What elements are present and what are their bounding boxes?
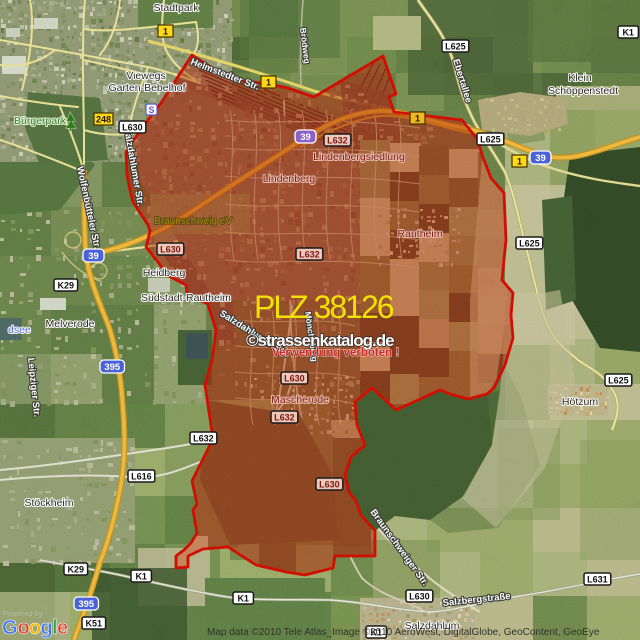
svg-text:Lindenberg: Lindenberg <box>263 173 316 185</box>
svg-text:Braunschweig eV: Braunschweig eV <box>154 216 232 227</box>
svg-text:o: o <box>18 617 30 639</box>
svg-text:1: 1 <box>266 78 271 88</box>
svg-text:395: 395 <box>78 599 95 610</box>
svg-text:Garten-Bebelhof: Garten-Bebelhof <box>108 82 185 94</box>
svg-text:Heidberg: Heidberg <box>143 267 186 279</box>
svg-text:K1: K1 <box>135 572 147 582</box>
svg-text:Map data ©2010 Tele Atlas_Imag: Map data ©2010 Tele Atlas_Image ©2010 Ae… <box>207 627 600 638</box>
svg-text:L630: L630 <box>319 480 340 490</box>
svg-text:Rautheim: Rautheim <box>398 228 443 240</box>
svg-text:1: 1 <box>415 114 420 124</box>
svg-text:L632: L632 <box>327 136 348 146</box>
svg-text:G: G <box>2 617 18 639</box>
svg-text:Bürgerpark: Bürgerpark <box>14 115 67 127</box>
svg-text:K29: K29 <box>68 565 85 575</box>
svg-text:395: 395 <box>104 362 121 373</box>
svg-text:Schöppenstedt: Schöppenstedt <box>548 85 618 97</box>
svg-text:L625: L625 <box>480 135 501 145</box>
svg-text:K29: K29 <box>58 281 75 291</box>
svg-text:e: e <box>57 617 68 639</box>
svg-text:Südstadt-Rautheim: Südstadt-Rautheim <box>141 292 231 304</box>
svg-text:L630: L630 <box>122 123 143 133</box>
svg-text:L632: L632 <box>299 250 320 260</box>
svg-text:L625: L625 <box>608 376 629 386</box>
svg-text:Hötzum: Hötzum <box>562 396 598 408</box>
svg-text:L616: L616 <box>131 472 152 482</box>
svg-text:39: 39 <box>300 132 311 143</box>
svg-text:dsee: dsee <box>8 324 31 336</box>
svg-text:L630: L630 <box>284 374 305 384</box>
svg-text:L632: L632 <box>193 434 214 444</box>
svg-text:L630: L630 <box>409 592 430 602</box>
svg-text:PLZ 38126: PLZ 38126 <box>254 289 394 325</box>
svg-text:Mascherode: Mascherode <box>271 394 329 406</box>
svg-text:Stadtpark: Stadtpark <box>154 2 200 14</box>
svg-text:L632: L632 <box>274 413 295 423</box>
svg-text:L625: L625 <box>445 42 466 52</box>
svg-text:K1: K1 <box>237 594 249 604</box>
svg-text:Verwendung verboten !: Verwendung verboten ! <box>272 347 399 359</box>
svg-text:248: 248 <box>96 115 111 125</box>
svg-text:1: 1 <box>517 157 522 167</box>
svg-text:K1: K1 <box>622 28 634 38</box>
svg-text:Melverode: Melverode <box>45 318 94 330</box>
svg-text:Lindenbergsiedlung: Lindenbergsiedlung <box>313 151 405 163</box>
svg-text:K51: K51 <box>86 619 103 629</box>
svg-text:Stöckheim: Stöckheim <box>24 497 73 509</box>
svg-text:1: 1 <box>163 27 168 37</box>
svg-text:S: S <box>148 105 154 115</box>
svg-text:Klein: Klein <box>568 72 592 84</box>
svg-text:g: g <box>41 617 53 639</box>
svg-text:L631: L631 <box>587 575 608 585</box>
svg-text:Viewegs: Viewegs <box>126 70 166 82</box>
svg-text:o: o <box>29 617 41 639</box>
svg-text:L625: L625 <box>519 239 540 249</box>
svg-text:L630: L630 <box>160 245 181 255</box>
svg-text:39: 39 <box>535 153 546 164</box>
svg-text:39: 39 <box>88 251 99 262</box>
